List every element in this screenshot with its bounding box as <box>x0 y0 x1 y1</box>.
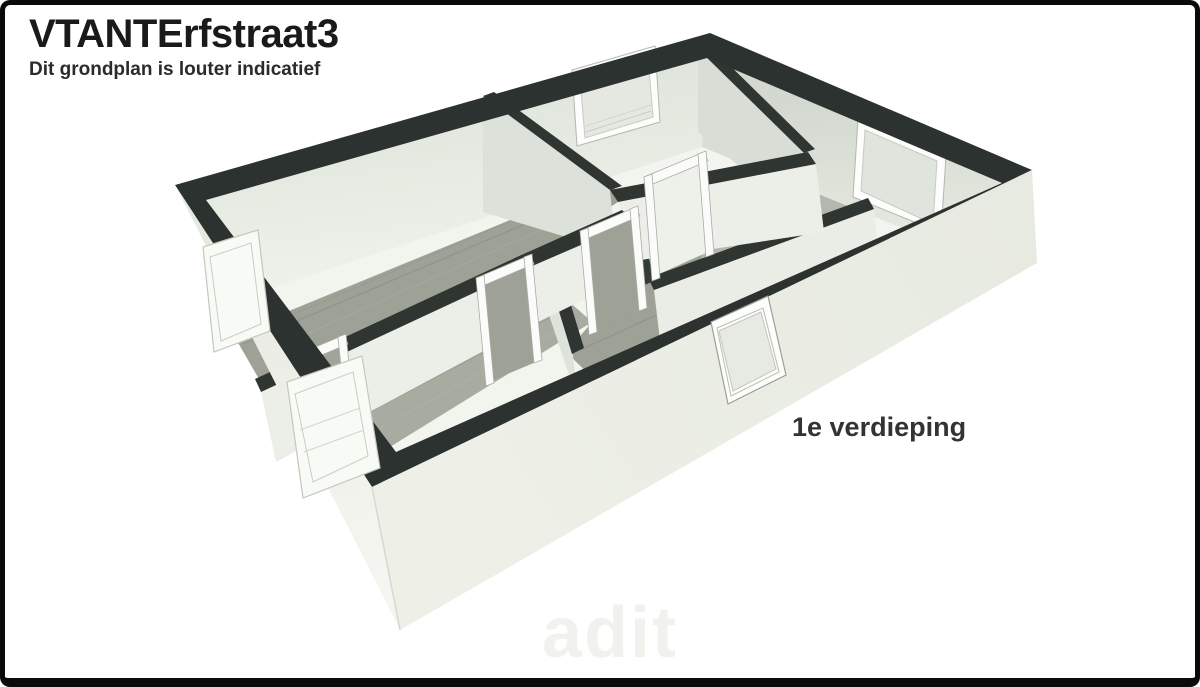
floor-label: 1e verdieping <box>792 412 966 443</box>
page-subtitle: Dit grondplan is louter indicatief <box>29 59 339 81</box>
left-exterior-window-upper <box>203 230 270 352</box>
page-title: VTANTErfstraat3 <box>29 12 339 56</box>
floorplan-3d-render <box>0 0 1200 687</box>
header: VTANTErfstraat3 Dit grondplan is louter … <box>29 12 339 81</box>
